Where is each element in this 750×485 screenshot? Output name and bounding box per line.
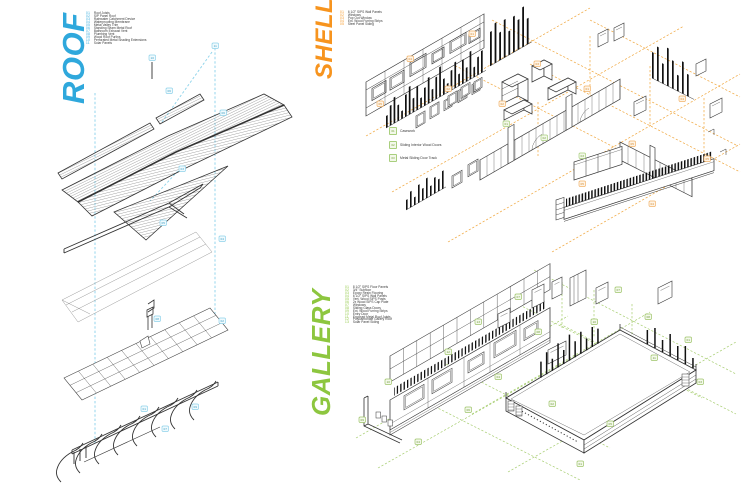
- callout-number: 03: [699, 380, 703, 384]
- callout-number: 04: [409, 57, 413, 61]
- callout-number: 08: [537, 330, 541, 334]
- sip-panel-roof-layer: [64, 308, 228, 400]
- callout-number: 01: [143, 407, 147, 411]
- roof-callout-tags: 101106060305040802010907: [141, 43, 227, 432]
- sliding-glass-panel: [574, 146, 622, 180]
- callout-number: 01: [579, 462, 583, 466]
- wood-furring-strips-tall: [490, 2, 532, 66]
- callout-number: 01: [687, 338, 691, 342]
- callout-number: 04: [221, 237, 225, 241]
- callout-number: 02: [447, 87, 451, 91]
- callout-number: 10: [151, 56, 155, 60]
- callout-number: 01: [505, 122, 509, 126]
- callout-number: 08: [647, 315, 651, 319]
- plumbing-vent: [147, 300, 154, 330]
- callout-number: 02: [221, 319, 225, 323]
- callout-number: 10: [387, 380, 391, 384]
- callout-number: 01: [471, 32, 475, 36]
- callout-number: 06: [222, 111, 226, 115]
- callout-number: 11: [214, 44, 217, 48]
- callout-number: 07: [617, 288, 621, 292]
- callout-number: 05: [581, 182, 585, 186]
- far-right-furring-strips: [652, 40, 694, 99]
- legend-item-number: 05: [340, 23, 347, 26]
- callout-number: 02: [551, 402, 555, 406]
- callout-number: 02: [501, 102, 505, 106]
- callout-number: 10: [593, 320, 597, 324]
- callout-number: 13: [477, 320, 481, 324]
- callout-number: 03: [581, 154, 585, 158]
- callout-number: 05: [631, 142, 635, 146]
- callout-number: 02: [543, 136, 547, 140]
- callout-number: 05: [162, 221, 166, 225]
- gallery-exploded-axon-diagram: 100904121304070802100708010301050611: [348, 262, 744, 480]
- callout-number: 05: [609, 422, 613, 426]
- callout-number: 11: [653, 356, 656, 360]
- waterproofing-membrane-layer: [62, 232, 212, 322]
- callout-number: 04: [651, 202, 655, 206]
- wood-furring-strips-small: [406, 167, 446, 210]
- drawing-sheet: ROOF 01 Roof Joists 02 SIP Panel Roof 03…: [0, 0, 750, 485]
- pop-out-windows: [452, 159, 478, 188]
- callout-number: 06: [467, 408, 471, 412]
- gallery-section-title: GALLERY: [306, 289, 337, 416]
- roof-exploded-axon-diagram: 101106060305040802010907: [50, 38, 295, 468]
- shell-section-title: SHELL: [311, 0, 339, 79]
- standing-seam-roof-layer: [58, 94, 292, 240]
- callout-number: 09: [361, 418, 365, 422]
- callout-number: 04: [497, 375, 501, 379]
- callout-number: 03: [181, 167, 185, 171]
- shell-exploded-axon-diagram: 010402050203010504050405010203: [352, 4, 744, 256]
- callout-number: 05: [706, 157, 710, 161]
- callout-number: 04: [681, 97, 685, 101]
- callout-number: 07: [517, 295, 521, 299]
- callout-number: 07: [164, 427, 168, 431]
- callout-number: 05: [379, 102, 383, 106]
- callout-number: 08: [156, 317, 160, 321]
- callout-number: 06: [168, 89, 172, 93]
- callout-number: 04: [417, 440, 421, 444]
- callout-number: 12: [447, 350, 451, 354]
- callout-number: 03: [536, 62, 540, 66]
- callout-number: 09: [194, 405, 198, 409]
- callout-number: 01: [586, 87, 590, 91]
